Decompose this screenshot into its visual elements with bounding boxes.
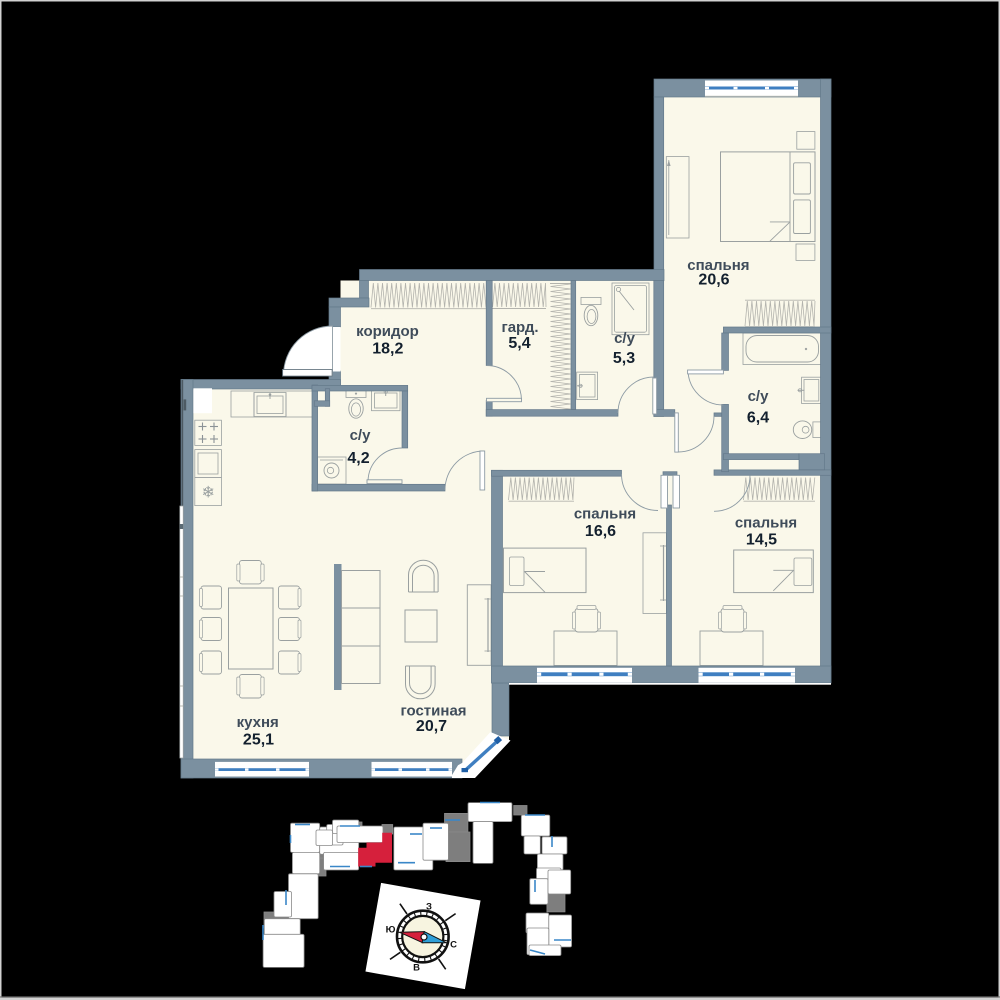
svg-text:гостиная: гостиная [400, 703, 466, 720]
svg-text:16,6: 16,6 [585, 523, 616, 540]
svg-text:З: З [426, 902, 432, 913]
svg-text:Ю: Ю [386, 925, 396, 936]
svg-text:20,6: 20,6 [698, 272, 729, 289]
svg-text:спальня: спальня [574, 506, 636, 523]
svg-text:гард.: гард. [501, 319, 538, 336]
svg-text:25,1: 25,1 [243, 732, 274, 749]
svg-text:С: С [450, 940, 457, 951]
svg-text:14,5: 14,5 [746, 532, 777, 549]
svg-text:5,4: 5,4 [508, 335, 530, 352]
svg-text:с/у: с/у [614, 330, 636, 347]
svg-text:5,3: 5,3 [613, 350, 635, 367]
svg-text:18,2: 18,2 [372, 341, 403, 358]
svg-text:20,7: 20,7 [416, 718, 447, 735]
svg-text:спальня: спальня [735, 515, 797, 532]
svg-text:кухня: кухня [237, 714, 279, 731]
svg-text:коридор: коридор [356, 323, 419, 340]
svg-text:с/у: с/у [748, 388, 770, 405]
svg-text:❄: ❄ [201, 485, 214, 502]
svg-text:В: В [413, 963, 420, 974]
svg-text:с/у: с/у [350, 427, 372, 444]
svg-text:6,4: 6,4 [747, 410, 769, 427]
svg-text:4,2: 4,2 [347, 450, 369, 467]
